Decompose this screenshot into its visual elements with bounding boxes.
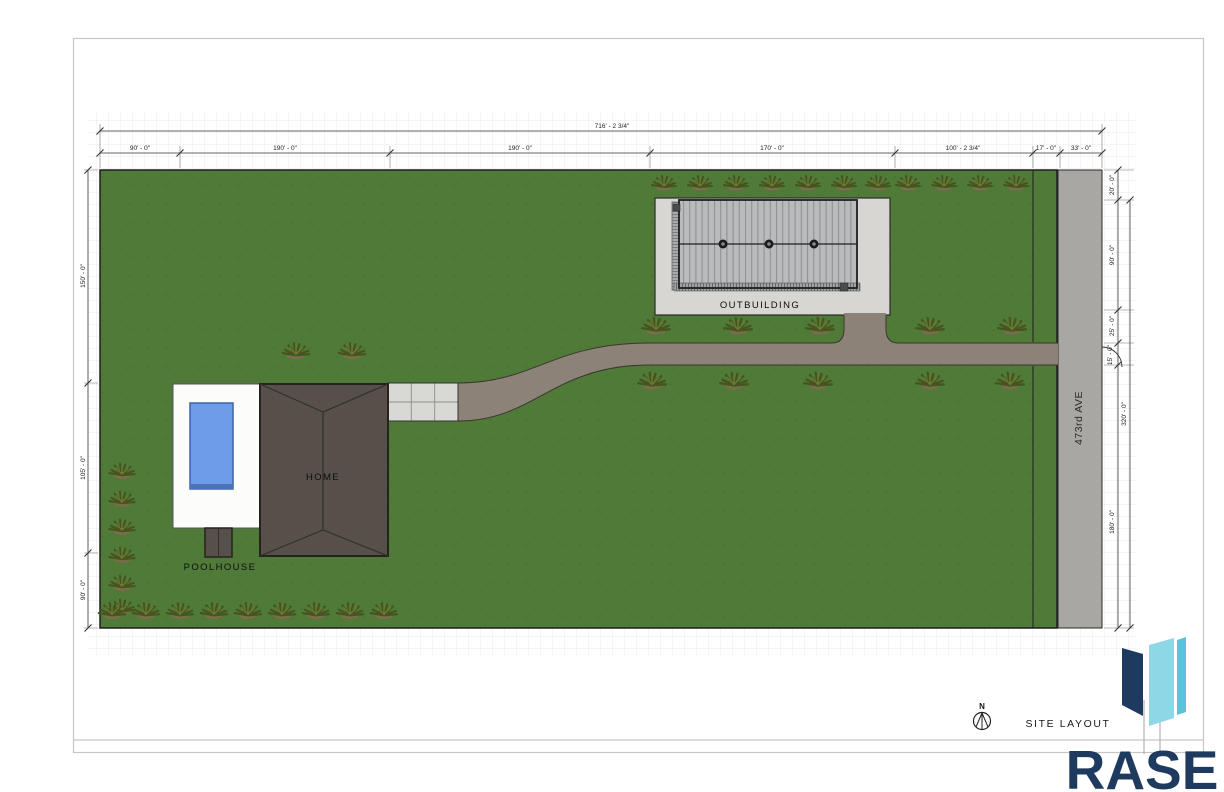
pool bbox=[190, 403, 233, 489]
dim-top-seg: 90' - 0" bbox=[130, 145, 151, 152]
dim-right-seg: 20' - 0" bbox=[1109, 174, 1116, 195]
paver-grid bbox=[388, 383, 458, 421]
dim-right-seg: 25' - 0" bbox=[1109, 315, 1116, 336]
dim-top-seg: 100' - 2 3/4" bbox=[946, 145, 981, 152]
dim-top-overall: 716' - 2 3/4" bbox=[595, 123, 630, 130]
compass-needle bbox=[976, 713, 988, 730]
logo-mark-teal bbox=[1177, 637, 1186, 715]
dim-left-seg: 150' - 0" bbox=[80, 263, 87, 287]
downspout-icon bbox=[840, 283, 848, 291]
dim-top-seg: 190' - 0" bbox=[273, 145, 297, 152]
residence: HOME POOLHOUSE bbox=[173, 384, 388, 573]
driveway-straight bbox=[650, 343, 1058, 365]
dim-top-seg: 190' - 0" bbox=[508, 145, 532, 152]
dimension-labels-left: 150' - 0" 105' - 0" 90' - 0" bbox=[80, 263, 87, 600]
road: 473rd AVE bbox=[1058, 170, 1102, 628]
dim-top-seg: 17' - 0" bbox=[1036, 145, 1057, 152]
dim-right-seg: 180' - 0" bbox=[1109, 509, 1116, 533]
dim-left-seg: 105' - 0" bbox=[80, 455, 87, 479]
site-plan-svg: 473rd AVE OUTBUILDING bbox=[0, 0, 1224, 792]
north-label: N bbox=[979, 702, 985, 711]
view-title: SITE LAYOUT bbox=[1025, 718, 1110, 730]
dim-right-overall: 320' - 0" bbox=[1121, 401, 1128, 425]
logo: RASE bbox=[1066, 637, 1219, 792]
north-arrow: N bbox=[974, 702, 991, 730]
dim-top-seg: 170' - 0" bbox=[760, 145, 784, 152]
poolhouse-label: POOLHOUSE bbox=[184, 562, 257, 573]
logo-wordmark: RASE bbox=[1066, 739, 1219, 792]
home-label: HOME bbox=[306, 472, 340, 483]
downspout-icon bbox=[673, 204, 680, 211]
dim-right-seg: 15' - 0" bbox=[1107, 344, 1114, 365]
outbuilding-label: OUTBUILDING bbox=[720, 300, 800, 311]
dim-top-seg: 33' - 0" bbox=[1071, 145, 1092, 152]
pool-edge bbox=[190, 484, 233, 489]
road-label: 473rd AVE bbox=[1073, 391, 1085, 445]
dim-right-seg: 90' - 0" bbox=[1109, 244, 1116, 265]
logo-mark-cyan bbox=[1149, 638, 1174, 726]
drawing-sheet: 473rd AVE OUTBUILDING bbox=[0, 0, 1224, 792]
logo-mark-navy bbox=[1122, 648, 1143, 716]
outbuilding-eave-hatch bbox=[674, 283, 860, 291]
dim-left-seg: 90' - 0" bbox=[80, 579, 87, 600]
